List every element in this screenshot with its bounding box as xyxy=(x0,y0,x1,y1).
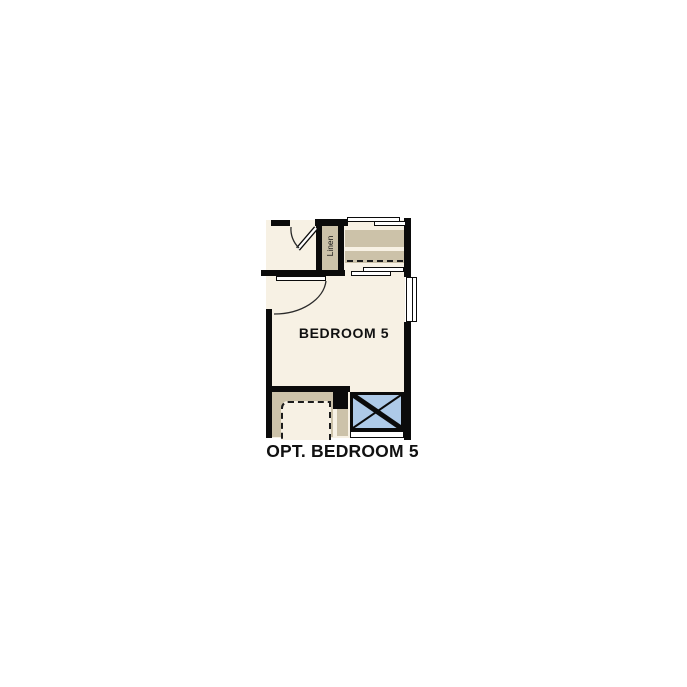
fixture-threshold xyxy=(350,431,404,438)
bedroom-door-leaf xyxy=(276,276,326,281)
optional-dashed-outline xyxy=(281,401,331,440)
plan-caption: OPT. BEDROOM 5 xyxy=(252,441,433,462)
fixture-x-lines xyxy=(353,395,401,428)
wall-top-left-stub xyxy=(271,220,290,226)
closet-shelf xyxy=(345,230,404,247)
lower-casework-strip xyxy=(337,409,348,436)
bypass-door-top-b xyxy=(374,221,406,226)
wall-stub-by-fixture xyxy=(333,392,348,409)
bedroom-label: BEDROOM 5 xyxy=(281,325,407,341)
page-canvas: Linen BEDROOM 5 OPT. BEDROOM 5 xyxy=(0,0,687,687)
bypass-door-closet-b xyxy=(351,271,391,276)
wall-linen-right xyxy=(338,226,344,276)
window-pane-line xyxy=(412,278,413,321)
wall-left xyxy=(266,309,272,438)
window xyxy=(406,277,417,322)
linen-label: Linen xyxy=(322,222,338,270)
fixture-x-box xyxy=(350,392,404,431)
closet-rod-dashed-line xyxy=(347,260,403,262)
wall-right-upper xyxy=(404,218,411,277)
floorplan: Linen BEDROOM 5 xyxy=(261,217,418,440)
